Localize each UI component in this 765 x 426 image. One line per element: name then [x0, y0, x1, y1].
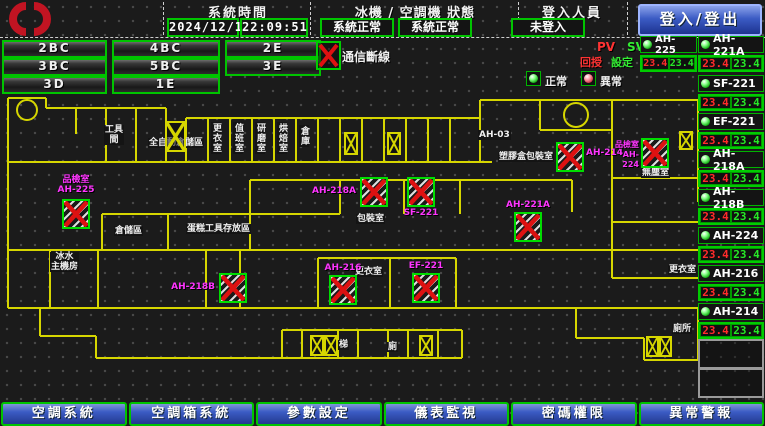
equipment-label-ef-221: EF-221 — [396, 261, 456, 271]
normal-label: 正常 — [545, 73, 567, 89]
floor-button-3e[interactable]: 3E — [225, 58, 321, 76]
device-values-ah-216: 23.423.4 — [698, 284, 764, 301]
equipment-label-ah-224: 品檢室 AH-224 — [613, 140, 639, 170]
room-label: 冰水 主機房 — [50, 252, 79, 272]
device-pv-value: 23.4 — [700, 172, 731, 185]
device-values-sf-221: 23.423.4 — [698, 94, 764, 111]
stair-icon — [310, 335, 324, 356]
device-pv-value: 23.4 — [700, 96, 731, 109]
stair-icon — [165, 121, 186, 152]
floor-button-2bc[interactable]: 2BC — [2, 40, 107, 58]
device-row-ah-218a[interactable]: AH-218A — [698, 151, 764, 168]
device-sv-value: 23.4 — [731, 210, 762, 223]
stair-icon — [344, 132, 358, 155]
device-pv-value: 23.4 — [700, 248, 731, 261]
room-label: 倉庫 — [299, 125, 309, 147]
stair-icon — [659, 336, 672, 357]
device-empty-slot — [698, 339, 764, 369]
nav-button-儀表監視[interactable]: 儀表監視 — [384, 402, 510, 426]
device-name: AH-221A — [713, 32, 763, 58]
floor-button-row-2: 3BC5BC3E — [2, 58, 326, 76]
device-pv-value: 23.4 — [700, 324, 731, 337]
nav-button-空調箱系統[interactable]: 空調箱系統 — [129, 402, 255, 426]
equipment-ah-218b[interactable] — [219, 273, 247, 303]
room-label: 值班室 — [233, 122, 243, 154]
device-row-ah-224[interactable]: AH-224 — [698, 227, 764, 244]
floor-plan-overlay: 工具 間全自動倉儲區更衣室值班室研磨室烘焙室倉庫AH-03塑膠盒包裝室無塵室包裝… — [0, 92, 765, 398]
device-status-led — [701, 40, 710, 49]
nav-button-參數設定[interactable]: 參數設定 — [256, 402, 382, 426]
device-name: EF-221 — [713, 115, 755, 128]
device-name: AH-214 — [713, 305, 758, 318]
device-row-ah-216[interactable]: AH-216 — [698, 265, 764, 282]
nav-button-空調系統[interactable]: 空調系統 — [1, 402, 127, 426]
room-label: AH-03 — [478, 130, 511, 140]
room-label: 倉儲區 — [114, 226, 143, 236]
device-pv-value: 23.4 — [700, 286, 731, 299]
hunya-logo-icon — [4, 1, 162, 36]
equipment-label-ah-221a: AH-221A — [498, 200, 558, 210]
floor-plan: 工具 間全自動倉儲區更衣室值班室研磨室烘焙室倉庫AH-03塑膠盒包裝室無塵室包裝… — [0, 92, 765, 398]
equipment-ah-225[interactable] — [62, 199, 90, 229]
room-label: 廁 — [387, 342, 398, 352]
device-status-led — [701, 269, 710, 278]
stair-icon — [679, 131, 693, 150]
device-pv-value: 23.4 — [700, 57, 731, 70]
comm-offline-label: 通信斷線 — [342, 48, 390, 65]
device-status-led — [643, 40, 652, 49]
equipment-ah-224[interactable] — [641, 138, 669, 168]
device-sv-value: 23.4 — [669, 57, 696, 70]
device-status-led — [701, 193, 710, 202]
device-pv-value: 23.4 — [700, 210, 731, 223]
header-divider — [310, 2, 311, 35]
room-label: 包裝室 — [356, 214, 385, 224]
room-label: 研磨室 — [255, 122, 265, 154]
room-label: 梯 — [338, 340, 349, 350]
equipment-ah-218a[interactable] — [360, 177, 388, 207]
device-sv-value: 23.4 — [731, 134, 762, 147]
stair-icon — [324, 335, 338, 356]
room-label: 更衣室 — [668, 265, 697, 275]
hmi-screen: 系統時間 2024/12/12 22:09:51 冰機 / 空調機 狀態 系統正… — [0, 0, 765, 426]
comm-offline-icon — [316, 41, 341, 70]
device-row-ah-225[interactable]: AH-225 — [640, 36, 697, 53]
device-values-ah-214: 23.423.4 — [698, 322, 764, 339]
device-name: AH-218B — [713, 185, 763, 211]
ac-status-value: 系統正常 — [398, 18, 472, 37]
device-sv-value: 23.4 — [731, 286, 762, 299]
equipment-label-ah-218b: AH-218B — [165, 282, 215, 292]
chiller-status-value: 系統正常 — [320, 18, 394, 37]
room-label: 塑膠盒包裝室 — [498, 152, 554, 162]
floor-button-4bc[interactable]: 4BC — [112, 40, 220, 58]
equipment-label-ah-216: AH-216 — [313, 263, 373, 273]
nav-button-密碼權限[interactable]: 密碼權限 — [511, 402, 637, 426]
nav-button-異常警報[interactable]: 異常警報 — [639, 402, 765, 426]
room-label: 更衣室 — [211, 122, 221, 154]
device-sv-value: 23.4 — [731, 248, 762, 261]
equipment-sf-221[interactable] — [407, 177, 435, 207]
login-status-value: 未登入 — [511, 18, 585, 37]
pv-sub-label: 回授 — [580, 54, 602, 70]
header-divider — [163, 2, 164, 35]
device-name: AH-224 — [713, 229, 758, 242]
equipment-label-ah-218a: AH-218A — [306, 186, 356, 196]
equipment-ah-214[interactable] — [556, 142, 584, 172]
device-status-led — [701, 307, 710, 316]
abnormal-label: 異常 — [600, 73, 622, 89]
room-label: 無塵室 — [641, 168, 670, 178]
stair-icon — [419, 335, 433, 356]
equipment-ef-221[interactable] — [412, 273, 440, 303]
device-row-sf-221[interactable]: SF-221 — [698, 75, 764, 92]
sv-sub-label: 設定 — [611, 54, 633, 70]
header-bar: 系統時間 2024/12/12 22:09:51 冰機 / 空調機 狀態 系統正… — [0, 0, 765, 38]
device-values-ah-224: 23.423.4 — [698, 246, 764, 263]
device-status-led — [701, 155, 710, 164]
system-date-value: 2024/12/12 — [167, 18, 239, 37]
floor-button-5bc[interactable]: 5BC — [112, 58, 220, 76]
device-sv-value: 23.4 — [731, 57, 762, 70]
device-empty-slot — [698, 368, 764, 398]
device-pv-value: 23.4 — [700, 134, 731, 147]
floor-button-row-1: 2BC4BC2E — [2, 40, 326, 58]
room-label: 工具 間 — [104, 125, 124, 145]
device-row-ef-221[interactable]: EF-221 — [698, 113, 764, 130]
device-row-ah-214[interactable]: AH-214 — [698, 303, 764, 320]
normal-led-icon — [526, 71, 541, 86]
floor-button-3bc[interactable]: 3BC — [2, 58, 107, 76]
floor-button-2e[interactable]: 2E — [225, 40, 321, 58]
equipment-ah-216[interactable] — [329, 275, 357, 305]
room-label: 廁所 — [672, 324, 692, 334]
device-values-ah-221a: 23.423.4 — [698, 55, 764, 72]
device-name: SF-221 — [713, 77, 756, 90]
equipment-label-sf-221: SF-221 — [391, 208, 451, 218]
equipment-ah-221a[interactable] — [514, 212, 542, 242]
pv-label: PV — [597, 40, 615, 54]
stair-icon — [646, 336, 659, 357]
device-status-led — [701, 231, 710, 240]
device-sv-value: 23.4 — [731, 172, 762, 185]
stair-icon — [387, 132, 401, 155]
device-name: AH-216 — [713, 267, 758, 280]
system-clock-value: 22:09:51 — [240, 18, 308, 37]
device-name: AH-218A — [713, 147, 763, 173]
device-row-ah-221a[interactable]: AH-221A — [698, 36, 764, 53]
device-values-ah-225: 23.4 23.4 — [640, 55, 697, 72]
device-sv-value: 23.4 — [731, 324, 762, 337]
device-status-led — [701, 79, 710, 88]
device-name: AH-225 — [655, 34, 696, 56]
device-sv-value: 23.4 — [731, 96, 762, 109]
device-values-ah-218b: 23.423.4 — [698, 208, 764, 225]
equipment-label-ah-225: 品檢室 AH-225 — [46, 175, 106, 195]
abnormal-led-icon — [581, 71, 596, 86]
bottom-nav-bar: 空調系統空調箱系統參數設定儀表監視密碼權限異常警報 — [0, 402, 765, 426]
device-row-ah-218b[interactable]: AH-218B — [698, 189, 764, 206]
room-label: 蛋糕工具存放區 — [186, 224, 251, 234]
header-divider — [627, 2, 628, 35]
device-status-led — [701, 117, 710, 126]
device-pv-value: 23.4 — [642, 57, 669, 70]
room-label: 烘焙室 — [277, 122, 287, 154]
